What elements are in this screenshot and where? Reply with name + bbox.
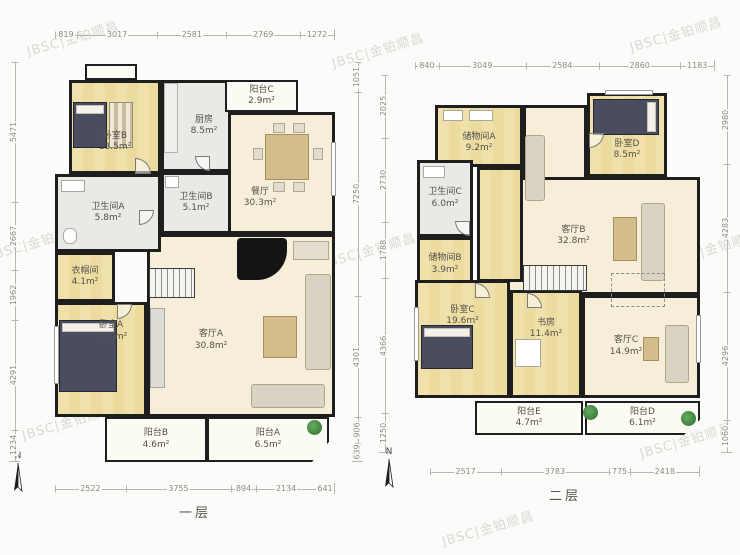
room-name: 客厅B <box>561 225 585 236</box>
sofa-icon <box>251 384 325 408</box>
dimension-value: 639 <box>354 443 362 460</box>
dimension-segment: 2025 <box>379 75 390 138</box>
dimension-segment: 840 <box>415 60 439 71</box>
cabinet-icon <box>469 110 493 121</box>
dimension-row-top-floor1: 8193017258127691272 <box>55 29 335 40</box>
dimension-segment: 1183 <box>680 60 715 71</box>
chair-icon <box>313 148 323 160</box>
dimension-segment: 2517 <box>430 466 501 477</box>
floor1-label: 一层 <box>55 502 335 521</box>
dimension-col-left-floor1: 54712667196242911234 <box>9 62 20 462</box>
dimension-segment: 819 <box>55 29 77 40</box>
room-area: 13.5m² <box>99 142 131 153</box>
room-name: 储物间B <box>428 253 461 264</box>
dimension-value: 775 <box>611 468 628 476</box>
room-area: 5.8m² <box>95 213 122 224</box>
washer-icon <box>443 110 463 121</box>
dimension-segment: 2522 <box>55 483 126 494</box>
dimension-segment: 3049 <box>439 60 526 71</box>
sink-icon <box>61 180 85 192</box>
dimension-segment: 775 <box>609 466 631 477</box>
floorplan-first-floor: 餐厅 30.3m² 客厅A 30.8m² 卧室B 13.5m² 厨房 8.5m²… <box>55 62 335 462</box>
dimension-value: 3783 <box>544 468 566 476</box>
dimension-segment: 2769 <box>226 29 300 40</box>
watermark: JBSC|金铂顺昌 <box>321 227 418 272</box>
north-arrow: N <box>10 452 26 494</box>
room-balcony-b: 阳台B 4.6m² <box>105 417 207 462</box>
room-name: 阳台D <box>630 407 655 418</box>
watermark: JBSC|金铂顺昌 <box>329 27 426 72</box>
dimension-row-top-floor2: 8403049258428601183 <box>415 60 715 71</box>
stairs-icon <box>523 265 587 291</box>
dimension-col-right-floor2: 2980428342961060 <box>721 75 732 453</box>
chair-icon <box>293 123 305 133</box>
dimension-segment: 2418 <box>630 466 700 477</box>
room-area: 6.0m² <box>432 199 459 210</box>
armchair-icon <box>293 241 329 260</box>
room-area: 5.1m² <box>183 203 210 214</box>
dimension-segment: 2667 <box>9 202 20 270</box>
dimension-segment: 2584 <box>526 60 599 71</box>
room-name: 储物间A <box>462 132 495 143</box>
compass-needle-icon <box>382 458 396 490</box>
dimension-value: 906 <box>354 422 362 439</box>
room-area: 9.2m² <box>466 143 493 154</box>
room-name: 阳台B <box>144 428 168 439</box>
dimension-segment: 1962 <box>9 270 20 320</box>
tv-cabinet-icon <box>150 308 165 388</box>
dimension-segment: 4366 <box>379 278 390 413</box>
dimension-value: 2522 <box>79 485 101 493</box>
north-arrow: N <box>381 448 397 490</box>
room-area: 4.1m² <box>72 277 99 288</box>
dimension-col-left-floor2: 20252730178843661250 <box>379 75 390 453</box>
plant-icon <box>681 411 696 426</box>
dimension-value: 1788 <box>381 239 389 261</box>
dimension-segment: 4291 <box>9 320 20 430</box>
dimension-row-bottom-floor1: 252237558942134641 <box>55 483 335 494</box>
chair-icon <box>293 182 305 192</box>
room-name: 客厅C <box>614 335 638 346</box>
sofa-icon <box>641 203 665 281</box>
room-area: 19.6m² <box>446 316 478 327</box>
room-name: 卧室B <box>103 131 127 142</box>
dimension-value: 4291 <box>11 364 19 386</box>
dimension-value: 1962 <box>11 284 19 306</box>
room-area: 14.9m² <box>610 347 642 358</box>
room-area: 11.4m² <box>530 329 562 340</box>
sofa-icon <box>665 325 689 383</box>
dimension-value: 2980 <box>723 108 731 130</box>
dimension-row-bottom-floor2: 251737837752418 <box>430 466 700 477</box>
dimension-segment: 2730 <box>379 138 390 223</box>
room-name: 卫生间A <box>91 202 124 213</box>
dimension-value: 1060 <box>723 425 731 447</box>
dimension-value: 1272 <box>306 31 328 39</box>
dimension-value: 7250 <box>354 183 362 205</box>
room-area: 8.5m² <box>614 150 641 161</box>
stair-void-dashed <box>611 273 665 307</box>
coffee-table-icon <box>263 316 297 358</box>
dimension-value: 819 <box>57 31 74 39</box>
dimension-value: 2025 <box>381 95 389 117</box>
room-balcony-e: 阳台E 4.7m² <box>475 401 583 435</box>
dimension-segment: 2980 <box>721 75 732 164</box>
dimension-segment: 1272 <box>300 29 335 40</box>
dimension-segment: 5471 <box>9 62 20 202</box>
room-area: 8.5m² <box>191 126 218 137</box>
dimension-value: 3017 <box>106 31 128 39</box>
watermark: JBSC|金铂顺昌 <box>627 11 724 56</box>
room-name: 阳台C <box>249 85 273 96</box>
desk-icon <box>515 339 541 367</box>
room-name: 客厅A <box>199 329 223 340</box>
stairs-icon <box>149 268 195 298</box>
hallway <box>477 167 523 282</box>
dimension-segment: 4283 <box>721 164 732 292</box>
bay-window <box>85 64 137 80</box>
window-icon <box>54 326 59 384</box>
dimension-segment: 4296 <box>721 292 732 420</box>
dimension-value: 1183 <box>686 62 708 70</box>
room-name: 卫生间C <box>428 187 461 198</box>
room-name: 卧室C <box>450 305 474 316</box>
chair-icon <box>273 123 285 133</box>
room-name: 阳台E <box>517 407 541 418</box>
dimension-segment: 3783 <box>501 466 608 477</box>
dimension-segment: 2581 <box>157 29 226 40</box>
side-table-icon <box>643 337 659 361</box>
dimension-value: 2517 <box>454 468 476 476</box>
dimension-value: 2134 <box>275 485 297 493</box>
dimension-segment: 1788 <box>379 222 390 277</box>
north-letter: N <box>386 448 393 457</box>
dimension-value: 2584 <box>551 62 573 70</box>
dimension-segment: 4301 <box>352 296 363 417</box>
dimension-value: 2667 <box>11 225 19 247</box>
dimension-value: 4366 <box>381 334 389 356</box>
room-name: 卫生间B <box>179 192 212 203</box>
dimension-segment: 906 <box>352 417 363 443</box>
floor2-label: 二层 <box>415 485 715 504</box>
dimension-value: 4283 <box>723 217 731 239</box>
dimension-value: 641 <box>316 485 333 493</box>
dimension-segment: 2860 <box>599 60 680 71</box>
dimension-segment: 639 <box>352 443 363 462</box>
watermark: JBSC|金铂顺昌 <box>439 505 536 550</box>
coffee-table-icon <box>613 217 637 261</box>
room-name: 书房 <box>537 318 555 329</box>
room-area: 17.7m² <box>95 332 127 343</box>
dimension-value: 4296 <box>723 345 731 367</box>
dimension-value: 5471 <box>11 121 19 143</box>
room-area: 4.6m² <box>143 440 170 451</box>
dimension-value: 1250 <box>381 421 389 443</box>
dimension-segment: 3017 <box>77 29 157 40</box>
dimension-value: 3049 <box>471 62 493 70</box>
room-area: 30.3m² <box>244 198 276 209</box>
sofa-icon <box>305 274 331 370</box>
floorplan-canvas: JBSC|金铂顺昌 JBSC|金铂顺昌 JBSC|金铂顺昌 JBSC|金铂顺昌 … <box>0 0 740 555</box>
chair-icon <box>273 182 285 192</box>
sofa-icon <box>525 135 545 201</box>
sink-icon <box>423 166 445 178</box>
plant-icon <box>583 405 598 420</box>
toilet-icon <box>63 228 77 244</box>
dimension-segment: 7250 <box>352 92 363 296</box>
dimension-segment: 894 <box>231 483 256 494</box>
dimension-value: 2860 <box>629 62 651 70</box>
room-area: 30.8m² <box>195 341 227 352</box>
dimension-value: 3755 <box>167 485 189 493</box>
dimension-value: 2730 <box>381 169 389 191</box>
bed-icon <box>593 99 659 135</box>
room-name: 阳台A <box>256 428 280 439</box>
dimension-value: 2769 <box>252 31 274 39</box>
dimension-value: 4301 <box>354 346 362 368</box>
room-area: 6.5m² <box>255 440 282 451</box>
kitchen-counter-icon <box>164 83 178 153</box>
dimension-value: 2581 <box>181 31 203 39</box>
room-name: 厨房 <box>195 115 213 126</box>
room-name: 卧室A <box>99 320 123 331</box>
room-area: 32.8m² <box>557 236 589 247</box>
room-name: 衣帽间 <box>71 266 98 277</box>
room-name: 餐厅 <box>251 187 269 198</box>
dimension-segment: 2134 <box>256 483 316 494</box>
room-name: 卧室D <box>615 139 640 150</box>
dimension-segment: 641 <box>316 483 335 494</box>
room-area: 3.9m² <box>432 265 459 276</box>
chair-icon <box>253 148 263 160</box>
dimension-segment: 3755 <box>126 483 231 494</box>
window-icon <box>605 90 653 95</box>
room-area: 6.1m² <box>629 418 656 429</box>
dining-table-icon <box>265 134 309 180</box>
window-icon <box>414 307 419 361</box>
dimension-segment: 1051 <box>352 62 363 92</box>
room-closet: 衣帽间 4.1m² <box>55 252 115 302</box>
room-area: 4.7m² <box>516 418 543 429</box>
window-icon <box>696 315 701 363</box>
dimension-value: 1234 <box>11 434 19 456</box>
window-icon <box>331 142 336 196</box>
dimension-value: 1051 <box>354 66 362 88</box>
dimension-value: 2418 <box>654 468 676 476</box>
plant-icon <box>307 420 322 435</box>
bed-icon <box>421 325 473 369</box>
sink-icon <box>165 176 179 188</box>
floorplan-second-floor: 客厅B 32.8m² 储物间A 9.2m² 卧室D 8.5m² 卫生间C 6.0… <box>415 75 715 435</box>
dimension-col-right-floor1: 105172504301906639 <box>352 62 363 462</box>
dimension-value: 840 <box>418 62 435 70</box>
room-balcony-c: 阳台C 2.9m² <box>225 80 298 112</box>
compass-needle-icon <box>11 462 25 494</box>
dimension-segment: 1060 <box>721 420 732 453</box>
dimension-value: 894 <box>235 485 252 493</box>
room-area: 2.9m² <box>248 96 275 107</box>
